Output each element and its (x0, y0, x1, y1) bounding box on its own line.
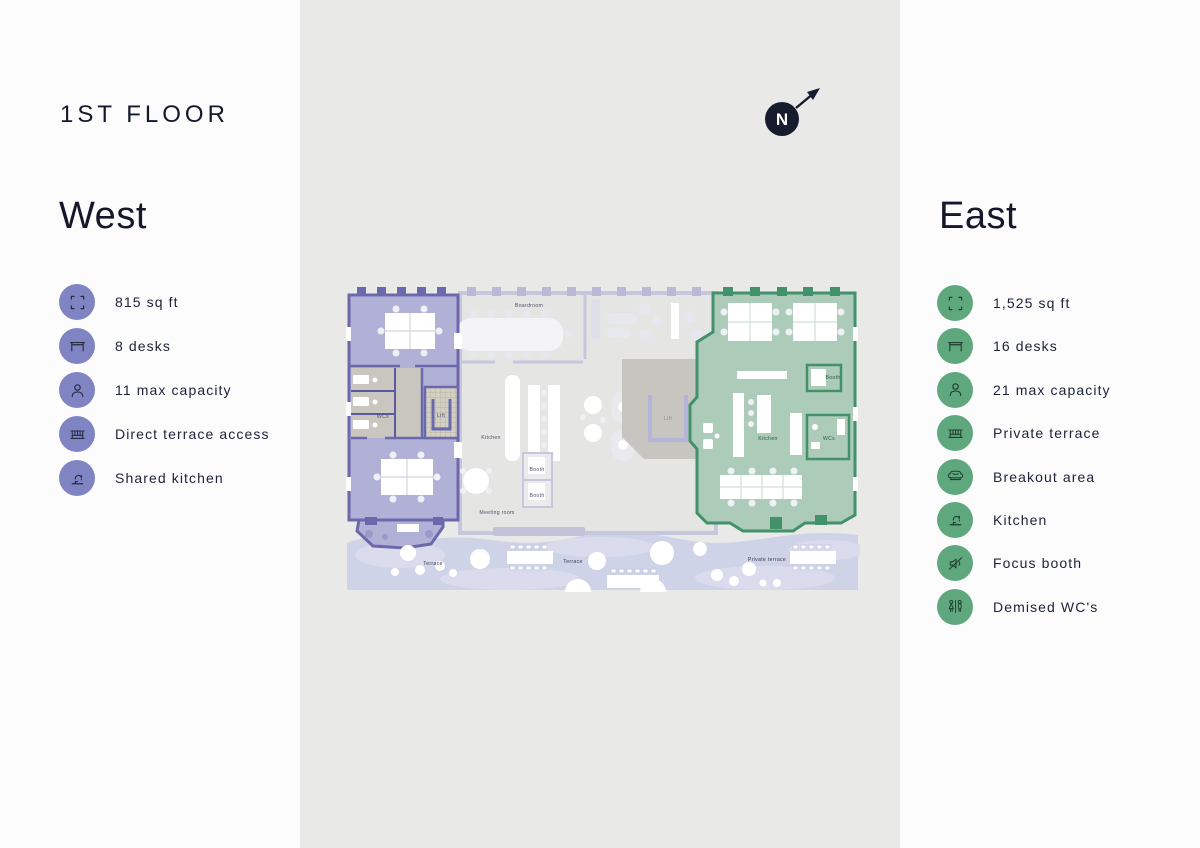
feature-row: 8 desks (59, 328, 270, 364)
feature-label: 1,525 sq ft (993, 295, 1070, 311)
feature-label: 815 sq ft (115, 294, 179, 310)
feature-label: Focus booth (993, 555, 1082, 571)
meeting-room-label: Meeting room (479, 510, 514, 516)
shared-area: Boardroom Kitchen (448, 287, 716, 536)
page: 1ST FLOOR West East 815 sq ft8 desks11 m… (0, 0, 1200, 848)
icon-sofa (937, 459, 973, 495)
private-terrace-label: Private terrace (748, 557, 786, 563)
west-feature-list: 815 sq ft8 desks11 max capacityDirect te… (59, 284, 270, 504)
floorplan-drawing: Boardroom Kitchen (345, 287, 860, 592)
feature-label: Private terrace (993, 425, 1101, 441)
east-kitchen-label: Kitchen (758, 436, 777, 442)
east-wcs-label: WCs (823, 436, 835, 442)
icon-area (937, 285, 973, 321)
boardroom-label: Boardroom (515, 303, 543, 309)
feature-label: 11 max capacity (115, 382, 232, 398)
feature-row: Kitchen (937, 502, 1111, 538)
feature-label: Direct terrace access (115, 426, 270, 442)
terrace-centre-label: Terrace (563, 559, 582, 565)
icon-kitchen (59, 460, 95, 496)
icon-desk (59, 328, 95, 364)
icon-terrace (937, 415, 973, 451)
icon-terrace (59, 416, 95, 452)
booth-2-label: Booth (529, 493, 544, 499)
feature-row: 16 desks (937, 328, 1111, 364)
feature-label: Demised WC's (993, 599, 1098, 615)
feature-row: Direct terrace access (59, 416, 270, 452)
icon-desk (937, 328, 973, 364)
icon-focus (937, 545, 973, 581)
feature-label: 21 max capacity (993, 382, 1111, 398)
east-booth-label: Booth (825, 375, 840, 381)
icon-area (59, 284, 95, 320)
icon-person (937, 372, 973, 408)
feature-row: Demised WC's (937, 589, 1111, 625)
feature-label: Kitchen (993, 512, 1047, 528)
north-compass: N (752, 80, 832, 138)
feature-row: 11 max capacity (59, 372, 270, 408)
feature-row: 1,525 sq ft (937, 285, 1111, 321)
east-demise: Booth Kitchen WCs (690, 287, 858, 531)
terrace-west-label: Terrace (423, 561, 442, 567)
compass-north-label: N (776, 110, 788, 129)
feature-label: Breakout area (993, 469, 1095, 485)
feature-row: Breakout area (937, 459, 1111, 495)
shared-kitchen-label: Kitchen (481, 435, 500, 441)
feature-label: 16 desks (993, 338, 1058, 354)
booth-1-label: Booth (529, 467, 544, 473)
feature-row: Shared kitchen (59, 460, 270, 496)
feature-row: 21 max capacity (937, 372, 1111, 408)
centre-lift-label: Lift (664, 416, 672, 422)
feature-label: Shared kitchen (115, 470, 224, 486)
west-wcs-label: WCs (377, 414, 389, 420)
icon-kitchen (937, 502, 973, 538)
west-lift-label: Lift (437, 413, 445, 419)
icon-wc (937, 589, 973, 625)
icon-person (59, 372, 95, 408)
west-demise: WCs Lift (346, 287, 462, 548)
feature-row: Private terrace (937, 415, 1111, 451)
feature-label: 8 desks (115, 338, 171, 354)
page-title: 1ST FLOOR (60, 101, 229, 129)
east-feature-list: 1,525 sq ft16 desks21 max capacityPrivat… (937, 285, 1111, 632)
feature-row: 815 sq ft (59, 284, 270, 320)
feature-row: Focus booth (937, 545, 1111, 581)
east-heading: East (939, 195, 1017, 238)
west-heading: West (59, 195, 147, 238)
